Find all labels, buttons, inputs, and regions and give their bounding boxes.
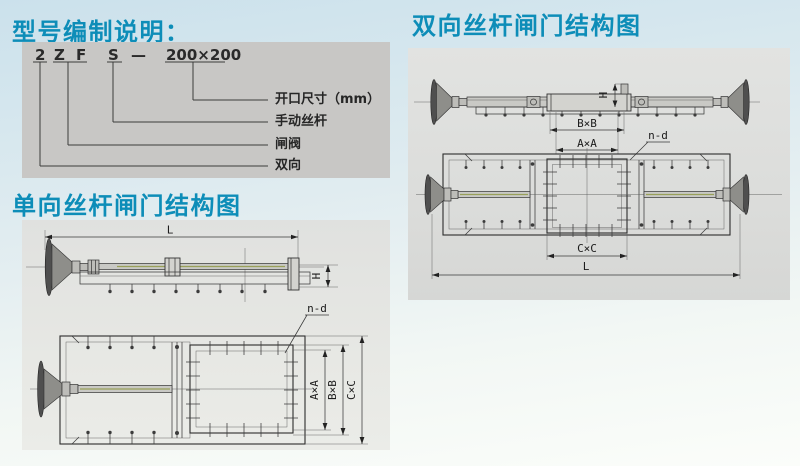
handwheel-top-right-icon	[716, 175, 749, 215]
double-diagram-drawing: H B×B A×A	[408, 48, 790, 300]
dim-frame-label: B×B	[326, 380, 339, 400]
meaning-opening-size: 开口尺寸（mm）	[275, 92, 380, 108]
code-size: 200×200	[166, 46, 241, 64]
code-connector-lines	[40, 62, 268, 166]
single-diagram-drawing: L	[22, 220, 390, 450]
handwheel-side-left-icon	[431, 80, 467, 125]
gate-body-side	[467, 84, 713, 117]
single-diagram-panel: L	[22, 220, 390, 450]
double-side-view: H B×B A×A	[414, 80, 760, 161]
dim-frame-label: B×B	[577, 117, 597, 130]
double-diagram-panel: H B×B A×A	[408, 48, 790, 300]
bearing-plate	[172, 342, 182, 438]
handwheel-top-left-icon	[425, 175, 458, 215]
double-top-view: C×C L	[416, 148, 782, 279]
dim-opening-label: A×A	[308, 380, 321, 400]
label-holes: n-d	[630, 129, 670, 160]
single-top-view: n-d A×A B×B	[30, 302, 368, 444]
screw-rod-top	[78, 386, 172, 393]
dim-seat-label: C×C	[345, 380, 358, 400]
meaning-gate-valve: 闸阀	[275, 137, 301, 153]
dim-length-label: L	[167, 224, 174, 237]
handwheel-side-icon	[45, 239, 99, 296]
model-code-panel: 2 Z F S — 200×200 开口尺寸（mm） 手动丝杆 闸阀 双向	[22, 42, 390, 178]
catalog-page: 型号编制说明： 单向丝杆闸门结构图 双向丝杆闸门结构图 2 Z F S — 20…	[0, 0, 800, 466]
holes-label: n-d	[307, 302, 327, 315]
code-screw: S	[108, 46, 119, 64]
single-side-view: L	[26, 224, 338, 303]
code-dash: —	[131, 46, 146, 64]
meaning-manual-screw: 手动丝杆	[275, 114, 327, 130]
handwheel-top-icon	[38, 361, 78, 417]
dim-length: L	[45, 224, 298, 263]
code-valve-f: F	[76, 46, 86, 64]
single-diagram-title: 单向丝杆闸门结构图	[12, 186, 242, 221]
dim-length-label: L	[583, 260, 590, 273]
holes-label: n-d	[648, 129, 668, 142]
dim-frame: B×B	[293, 345, 349, 435]
dim-height-label: H	[310, 273, 323, 280]
code-valve-z: Z	[54, 46, 65, 64]
code-direction: 2	[35, 46, 45, 64]
screw-rod-side	[99, 258, 289, 276]
double-diagram-title: 双向丝杆闸门结构图	[412, 6, 642, 41]
dim-seat-label: C×C	[577, 242, 597, 255]
dim-height-label: H	[597, 92, 610, 99]
handwheel-side-right-icon	[713, 80, 749, 125]
meaning-bidirectional: 双向	[275, 158, 301, 174]
